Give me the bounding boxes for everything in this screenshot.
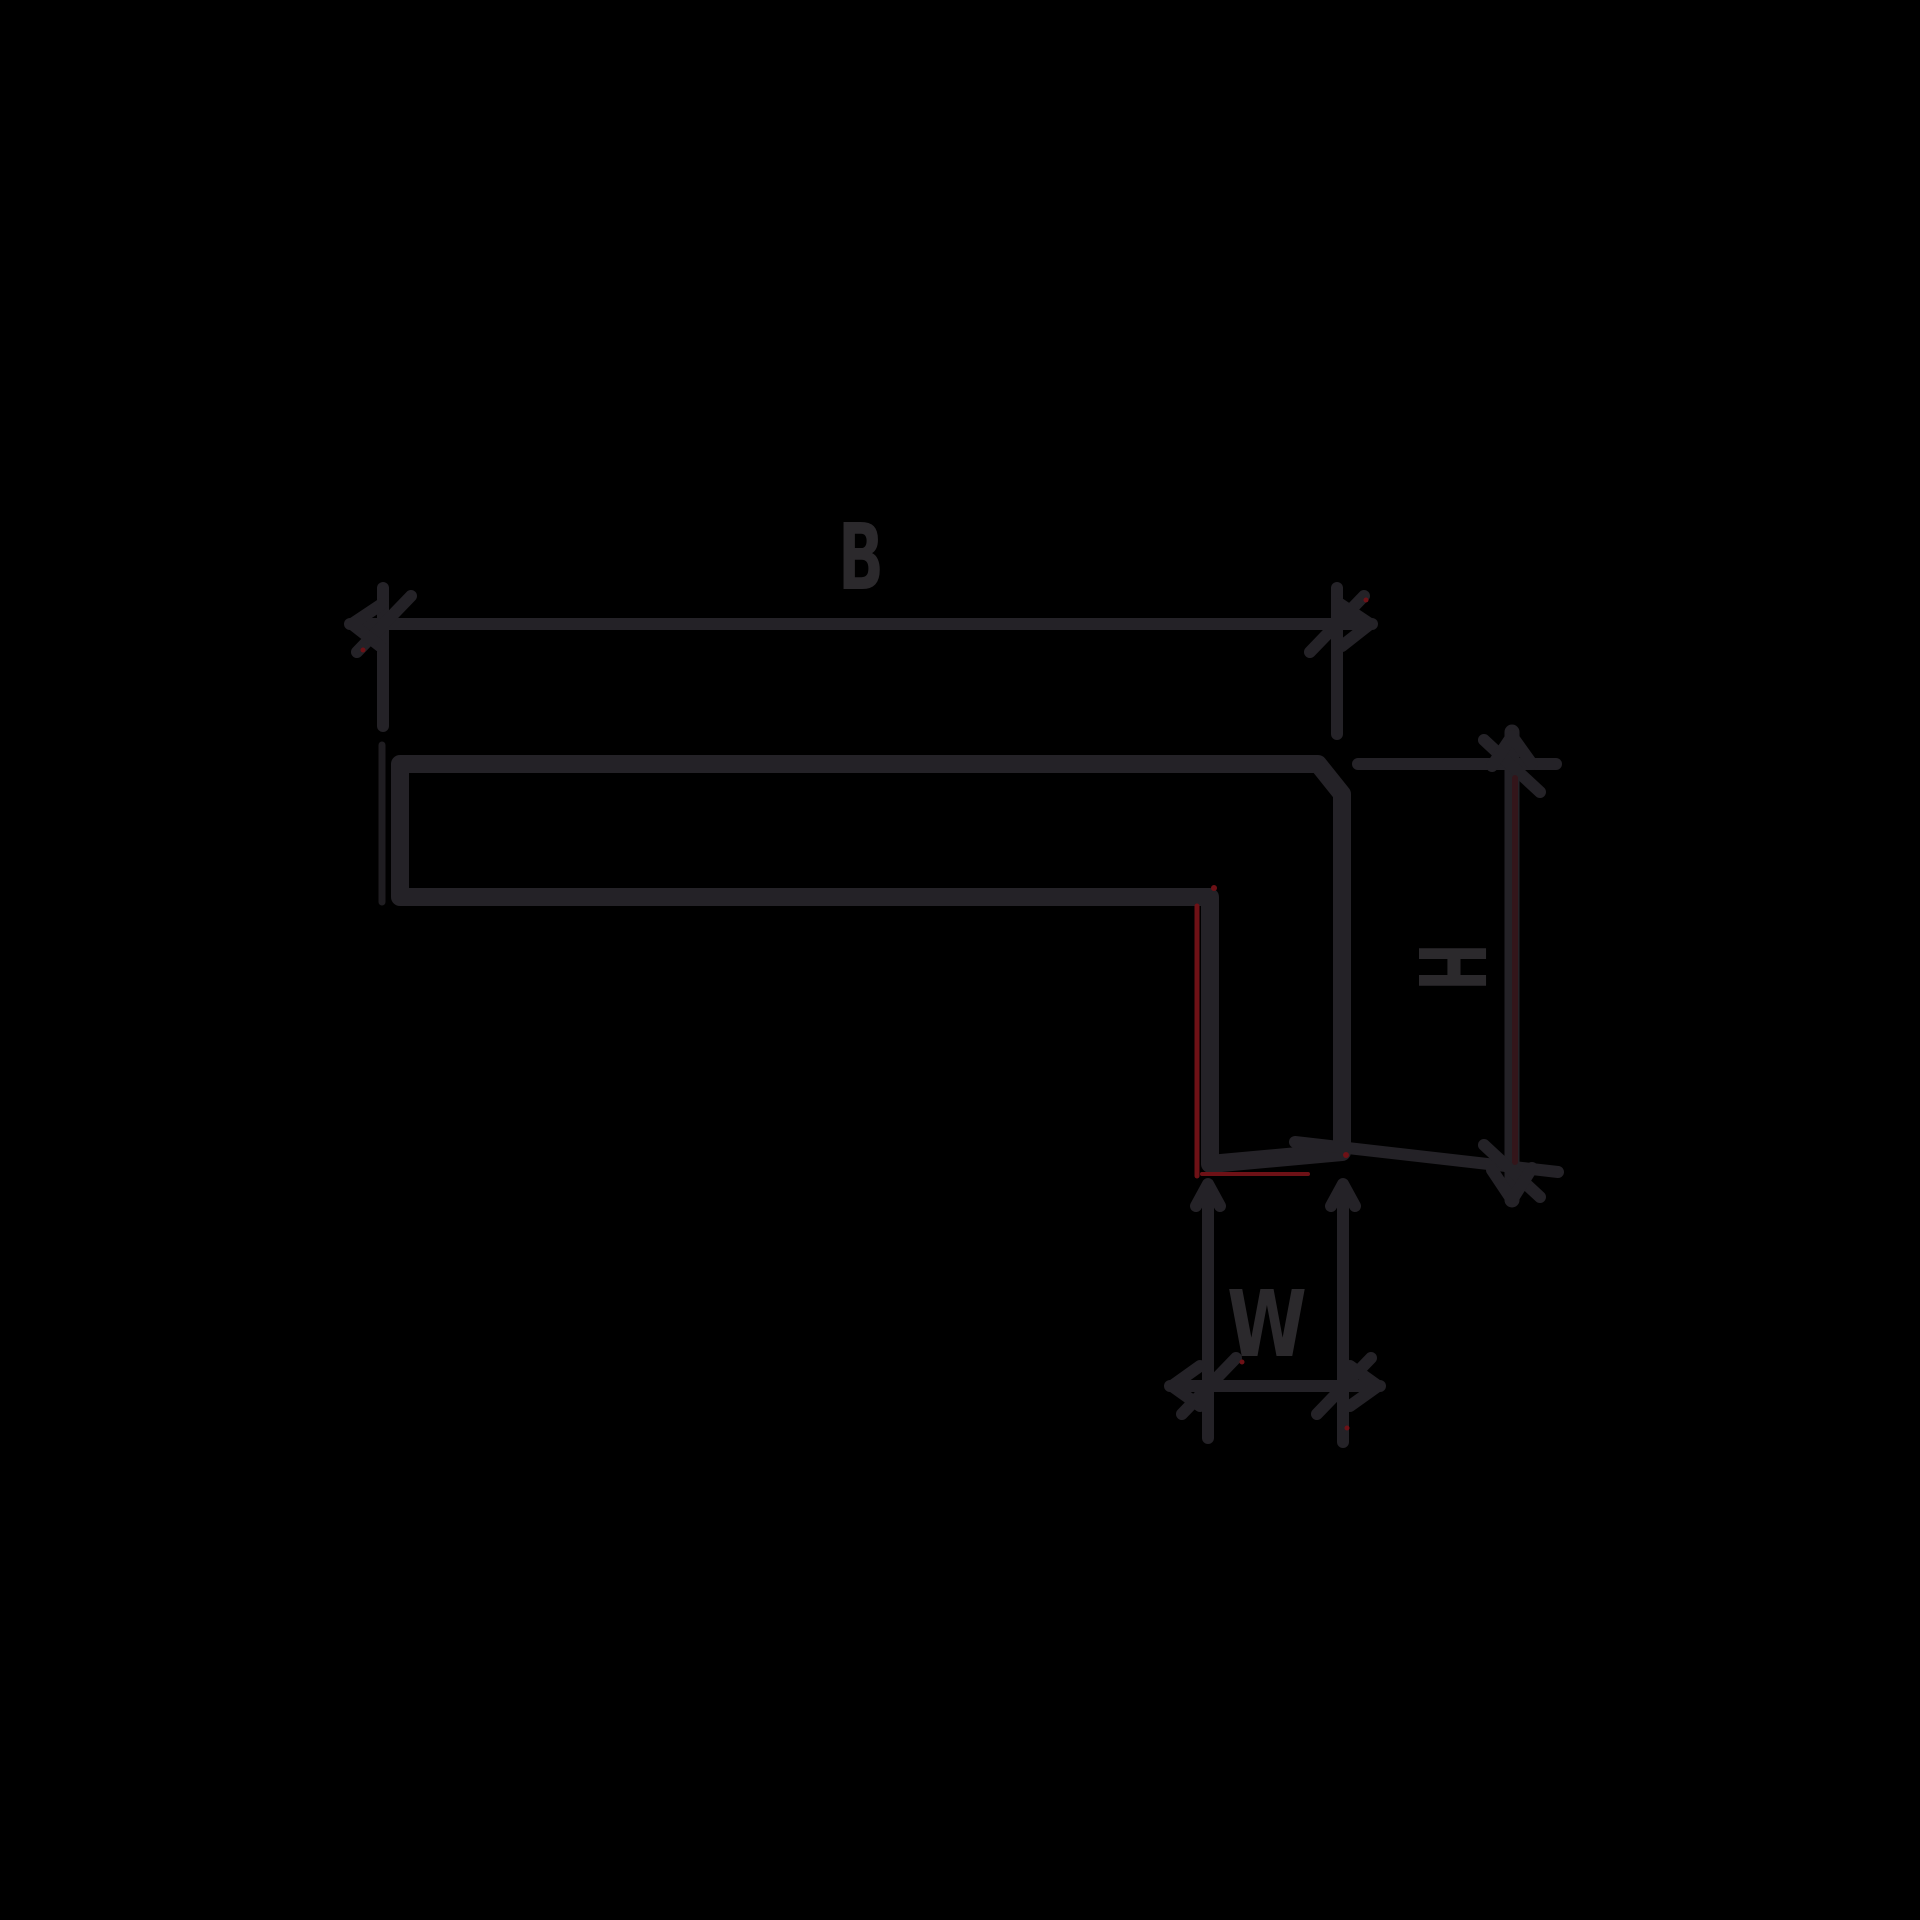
profile-dimension-drawing: B H W	[0, 0, 1920, 1920]
drawing-canvas: B H W	[0, 0, 1920, 1920]
label-b: B	[838, 504, 884, 611]
label-h: H	[1397, 943, 1504, 991]
profile-group	[400, 764, 1342, 1164]
profile-outline	[400, 764, 1342, 1164]
red-fleck	[1343, 1152, 1349, 1158]
red-fleck	[1364, 598, 1369, 603]
red-fleck	[361, 648, 366, 653]
dimension-b-group	[350, 588, 1372, 902]
dimension-labels: B H W	[838, 504, 1504, 1378]
red-fleck	[1211, 885, 1217, 891]
red-fleck	[1345, 1426, 1350, 1431]
label-w: W	[1227, 1271, 1307, 1378]
